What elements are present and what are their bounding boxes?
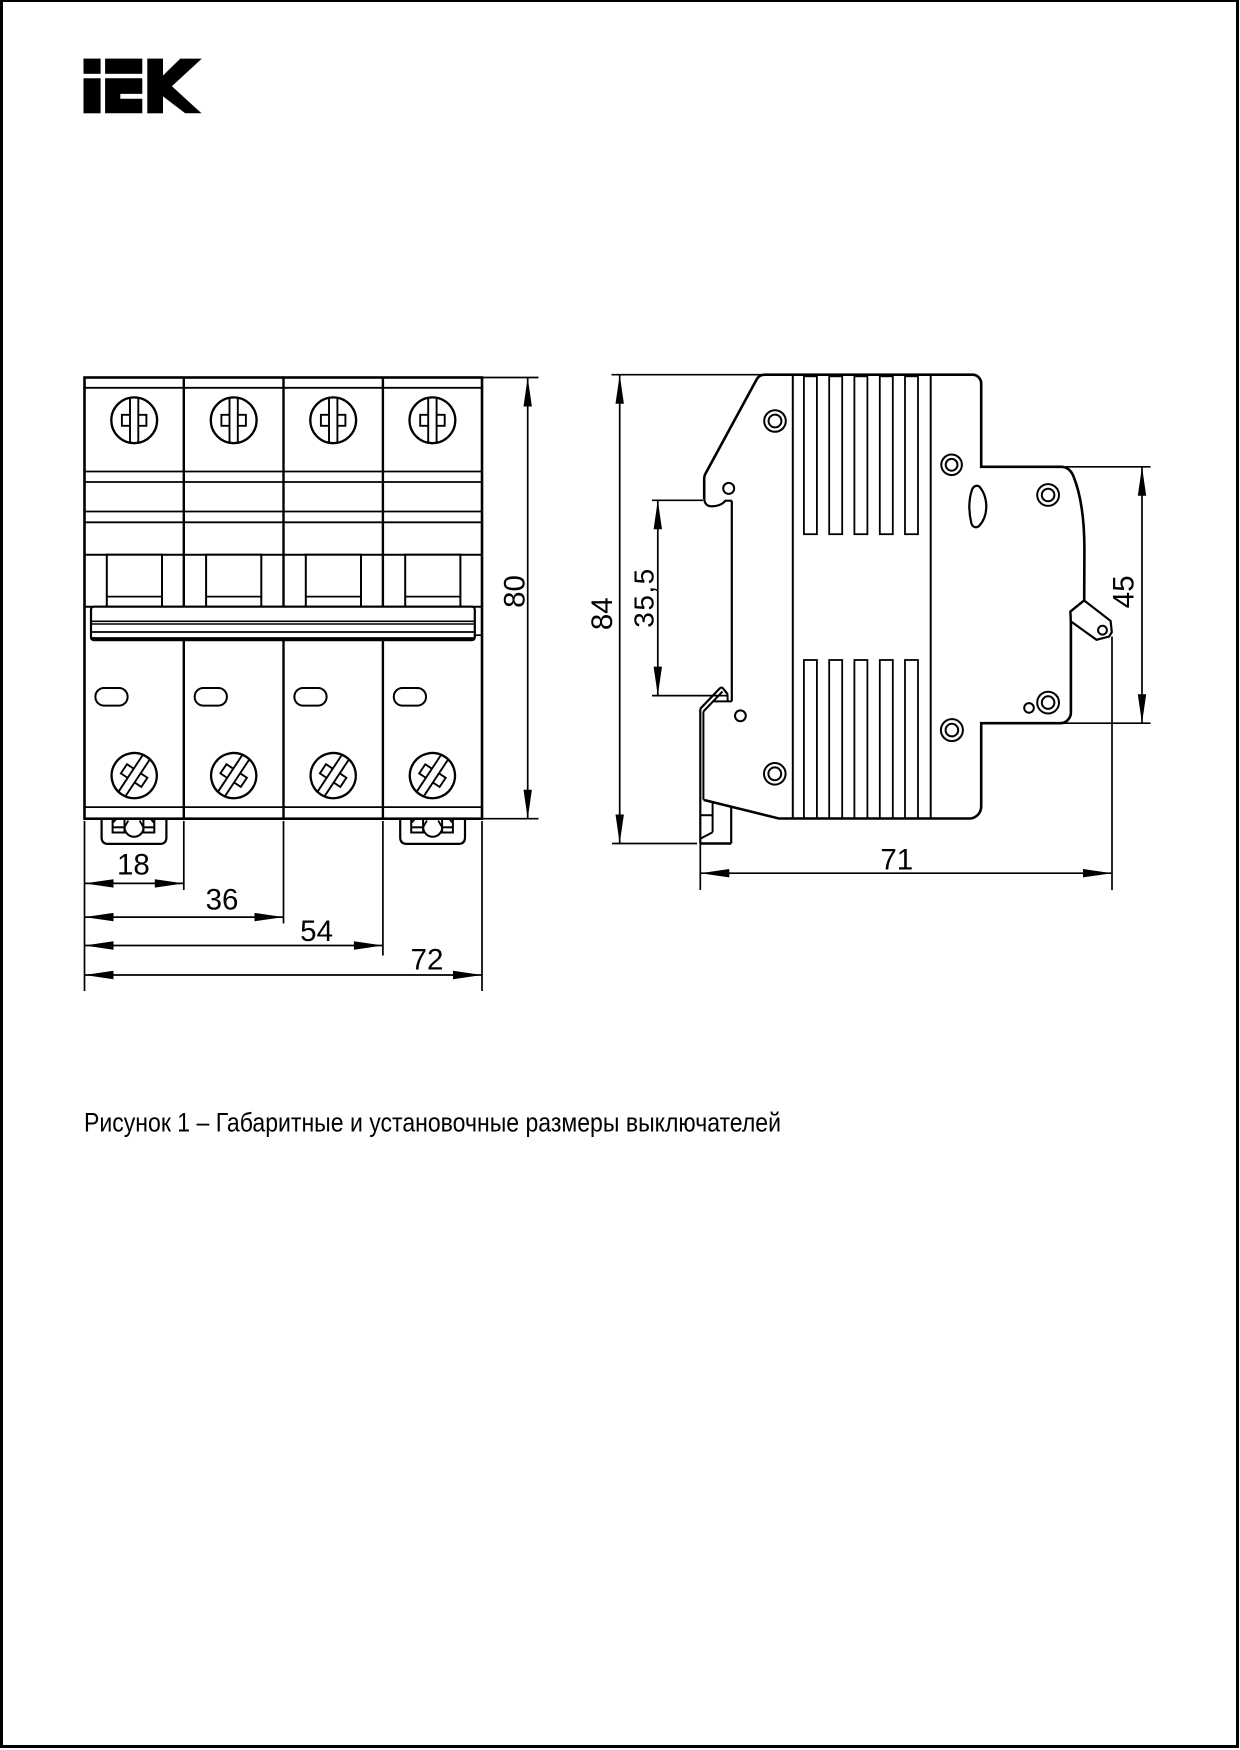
svg-text:35,5: 35,5 bbox=[629, 567, 660, 628]
svg-text:80: 80 bbox=[498, 575, 531, 608]
svg-text:84: 84 bbox=[586, 597, 619, 630]
svg-text:Рисунок 1 – Габаритные и устан: Рисунок 1 – Габаритные и установочные ра… bbox=[84, 1108, 781, 1138]
svg-text:18: 18 bbox=[117, 849, 150, 882]
svg-text:54: 54 bbox=[300, 915, 333, 948]
svg-text:72: 72 bbox=[411, 944, 444, 977]
svg-text:45: 45 bbox=[1108, 575, 1141, 608]
svg-text:71: 71 bbox=[880, 844, 913, 877]
svg-text:36: 36 bbox=[206, 884, 239, 917]
